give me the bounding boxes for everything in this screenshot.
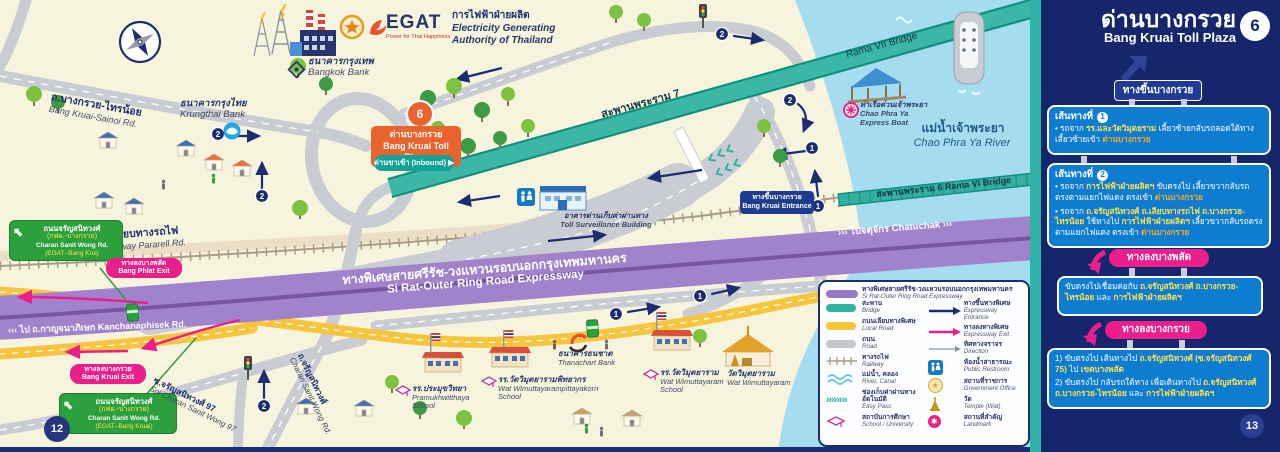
egat-name-en2: Authority of Thailand: [452, 35, 553, 46]
thanachart-label: ธนาคารธนชาต Thanachart Bank: [558, 350, 615, 367]
route-2-number: 2: [1097, 170, 1108, 181]
landmark-icon: ✱: [928, 415, 941, 428]
river-label-en: Chao Phra Ya River: [894, 137, 1030, 149]
green-sign2-line3: Charan Sanit Wong Rd.: [76, 415, 172, 423]
bang-kruai-exit-th: ทางลงบางกรวย: [76, 366, 140, 374]
egat-logo-text: EGAT: [386, 12, 441, 33]
green-sign-charan-2: ⬉ ถนนจรัญสนิทวงศ์ (กฟผ.-บางกรวย) Charan …: [60, 394, 176, 433]
sidebar-bang-phlat-exit-sign: ทางลงบางพลัด: [1109, 249, 1209, 267]
route-2-marker: 2: [260, 192, 265, 201]
map-page-number: 12: [44, 416, 70, 442]
sidebar-entrance-sign: ทางขึ้นบางกรวย: [1114, 80, 1202, 101]
green-sign-charan-1: ⬉ ถนนจรัญสนิทวงศ์ (กฟผ.-บางกรวย) Charan …: [10, 221, 122, 260]
route-2-marker: 2: [216, 130, 221, 139]
route-2-marker: 2: [720, 30, 725, 39]
bang-kruai-text-1: 1) ขับตรงไป เส้นทางไป ถ.จรัญสนิทวงศ์ (ซ.…: [1055, 354, 1263, 375]
legend-government-en: Government Office: [964, 386, 1016, 393]
bang-kruai-box: 1) ขับตรงไป เส้นทางไป ถ.จรัญสนิทวงศ์ (ซ.…: [1047, 348, 1271, 409]
bang-kruai-exit-en: Bang Kruai Exit: [76, 374, 140, 382]
bang-phlat-box: ขับตรงไปเชื่อมต่อกับ ถ.จรัญสนิทวงศ์ ถ.บา…: [1057, 276, 1263, 316]
route-2-text-2: • รถจาก ถ.จรัญสนิทวงศ์ ถ.เลียบทางรถไฟ ถ.…: [1055, 207, 1263, 239]
legend-direction-en: Direction: [964, 349, 1002, 356]
river-icon: [826, 373, 858, 385]
toll-plaza-sign-th: ด่านบางกรวย: [373, 129, 459, 141]
surveillance-label-en: Toll Surveillance Building: [536, 221, 676, 229]
bridge-swatch: [826, 304, 856, 312]
bang-kruai-text-2: 2) ขับตรงไป กลับรถใต้ทาง เพื่อเดินทางไป …: [1055, 378, 1263, 399]
toll-plaza-map-page: 2 2 2 2 2 1 1 1 1: [0, 0, 1280, 452]
route-1-header: เส้นทางที่: [1055, 111, 1093, 123]
bang-phlat-exit-th: ทางลงบางพลัด: [112, 260, 176, 268]
school1-en2: School: [412, 402, 470, 410]
sidebar-title-th: ด่านบางกรวย: [1101, 7, 1236, 31]
exit-down-arrow-icon: [1083, 322, 1105, 346]
entrance-up-arrow-icon: [1115, 54, 1149, 82]
inbound-badge: ด่านขาเข้า (Inbound) ▶: [374, 155, 454, 171]
green-sign2-line4: (EGAT–Bang Kruai): [76, 423, 172, 431]
route-1-text: • รถจาก รร.และวัดวิมุตยราม เลี้ยวซ้ายกลั…: [1055, 124, 1263, 145]
bang-kruai-entrance-badge: ทางขึ้นบางกรวย Bang Kruai Entrance: [740, 191, 814, 214]
legend-railway-en: Railway: [862, 362, 889, 369]
bang-phlat-exit-en: Bang Phlat Exit: [112, 268, 176, 276]
sidebar-plaza-number-badge: 6: [1240, 11, 1270, 41]
chevrons-right-icon: ›››: [942, 219, 952, 231]
entrance-badge-th: ทางขึ้นบางกรวย: [740, 193, 814, 202]
bang-phlat-text: ขับตรงไปเชื่อมต่อกับ ถ.จรัญสนิทวงศ์ ถ.บา…: [1065, 282, 1255, 303]
school3-label: รร.วัดวิมุตยาราม Wat Wimuttayaram School: [660, 369, 724, 395]
route-2-marker: 2: [788, 96, 793, 105]
chevrons-right-icon: ›››: [838, 227, 848, 239]
up-left-arrow-icon: ⬉: [13, 225, 23, 240]
exit-down-arrow-icon: [1087, 250, 1109, 274]
toll-plaza-number-badge: 6: [406, 100, 434, 128]
sign-post: [1127, 340, 1133, 348]
bangkok-bank-label-en: Bangkok Bank: [308, 68, 369, 79]
green-sign1-line3: Charan Sanit Wong Rd.: [26, 242, 118, 250]
legend-river-en: River, Canal: [862, 379, 898, 386]
route-2-header: เส้นทางที่: [1055, 169, 1093, 181]
express-boat-landmark-icon: [844, 103, 858, 117]
map-legend: ทางพิเศษสายศรีรัช-วงแหวนรอบนอกกรุงเทพมหา…: [818, 280, 1030, 447]
route-2-marker: 2: [262, 402, 267, 411]
green-sign1-line2: (กฟผ.-บางกรวย): [26, 233, 118, 242]
legend-right-column: ทางขึ้นทางพิเศษExpressway Entrance ทางลง…: [928, 301, 1022, 429]
route-1-number: 1: [1097, 112, 1108, 123]
restroom-icon: [517, 188, 535, 206]
entrance-arrow-icon: [928, 307, 962, 315]
map-sidebar-divider: [1030, 0, 1041, 452]
sidebar-title: ด่านบางกรวย Bang Kruai Toll Plaza: [1101, 7, 1236, 45]
expressway-swatch: [826, 290, 858, 298]
restroom-legend-icon: [928, 360, 943, 375]
river-label-th: แม่น้ำเจ้าพระยา: [900, 122, 1026, 135]
sign-post: [1181, 268, 1187, 276]
route-1-box: เส้นทางที่1 • รถจาก รร.และวัดวิมุตยราม เ…: [1047, 105, 1271, 155]
boat-icon: [954, 12, 984, 94]
egat-tagline: Power for Thai Happiness: [386, 34, 450, 40]
map-bottom-border: [0, 447, 1030, 452]
legend-road-en: Road: [862, 344, 877, 351]
exit-arrow-icon: [928, 328, 962, 336]
legend-exit-en: Expressway Exit: [964, 332, 1009, 339]
legend-restroom-en: Public Restroom: [964, 367, 1012, 374]
green-sign1-line4: (EGAT–Bang Krui): [26, 250, 118, 258]
school1-label: รร.ประมุขวิทยา Pramukhwitthaya School: [412, 385, 470, 411]
legend-left-column: สะพานBridge ถนนเลียบทางพิเศษLocal Road ถ…: [826, 301, 928, 429]
krungthai-bank-label-en: Krungthai Bank: [180, 110, 245, 121]
route-1-marker: 1: [816, 202, 821, 211]
sidebar-bang-kruai-exit-sign: ทางลงบางกรวย: [1105, 321, 1207, 339]
egat-name-th: การไฟฟ้าฝ่ายผลิต: [452, 10, 530, 21]
school2-en2: School: [498, 393, 598, 401]
sign-post: [1179, 340, 1185, 348]
road-swatch: [826, 340, 856, 348]
route-1-marker: 1: [810, 144, 815, 153]
green-sign2-line2: (กฟผ.-บางกรวย): [76, 406, 172, 415]
legend-bridge-en: Bridge: [862, 308, 882, 315]
legend-easypass-en: Easy Pass: [862, 404, 928, 411]
easypass-icon: »»»»: [826, 394, 862, 406]
sign-post: [1129, 268, 1135, 276]
legend-row-expressway: ทางพิเศษสายศรีรัช-วงแหวนรอบนอกกรุงเทพมหา…: [826, 287, 1022, 300]
up-left-arrow-icon: ⬉: [63, 398, 73, 413]
direction-arrow-icon: [928, 345, 962, 353]
school2-label: รร.วัดวิมุตยารามพิทยากร Wat Wimuttayaram…: [498, 376, 598, 402]
krungthai-bank-icon: [224, 123, 241, 140]
legend-easypass-th: ช่องเก็บค่าผ่านทางอัตโนมัติ: [862, 390, 928, 404]
legend-temple-en: Temple (Wat): [964, 404, 1001, 411]
temple-label: วัดวิมุตยาราม Wat Wimuttayaram: [727, 370, 791, 387]
route-2-text-1: • รถจาก การไฟฟ้าฝ่ายผลิตฯ ขับตรงไป เลี้ย…: [1055, 182, 1263, 203]
route-2-box: เส้นทางที่2 • รถจาก การไฟฟ้าฝ่ายผลิตฯ ขั…: [1047, 163, 1271, 248]
express-boat-label-en2: Express Boat: [860, 119, 908, 127]
bang-kruai-exit-sign: ทางลงบางกรวย Bang Kruai Exit: [70, 364, 146, 384]
toll-surveillance-building: [540, 186, 586, 210]
route-1-marker: 1: [698, 292, 703, 301]
route-1-marker: 1: [614, 310, 619, 319]
local-road-swatch: [826, 322, 856, 330]
directions-sidebar: ด่านบางกรวย Bang Kruai Toll Plaza 6 ทางข…: [1041, 0, 1280, 452]
government-office-icon: ★: [928, 378, 943, 393]
compass-icon: [120, 22, 160, 62]
green-sign1-line1: ถนนจรัญสนิทวงศ์: [26, 224, 118, 233]
legend-school-en: School / University: [862, 422, 913, 429]
legend-local-road-en: Local Road: [862, 326, 916, 333]
chevrons-left-icon: ‹‹‹: [8, 325, 17, 335]
entrance-badge-en: Bang Kruai Entrance: [740, 202, 814, 211]
sidebar-page-number: 13: [1240, 414, 1264, 438]
legend-entrance-en: Expressway Entrance: [964, 308, 1022, 321]
school3-en2: School: [660, 386, 724, 394]
green-sign2-line1: ถนนจรัญสนิทวงศ์: [76, 397, 172, 406]
egat-name-en1: Electricity Generating: [452, 23, 555, 34]
railway-icon: [826, 356, 858, 366]
bang-phlat-exit-sign: ทางลงบางพลัด Bang Phlat Exit: [106, 258, 182, 278]
map-canvas: 2 2 2 2 2 1 1 1 1: [0, 0, 1030, 452]
temple-en: Wat Wimuttayaram: [727, 379, 791, 387]
school-cap-icon: [826, 415, 848, 428]
temple-legend-icon: [928, 397, 942, 411]
sidebar-title-en: Bang Kruai Toll Plaza: [1101, 31, 1236, 45]
legend-landmark-en: Landmark: [964, 422, 1002, 429]
thanachart-en: Thanachart Bank: [558, 359, 615, 367]
